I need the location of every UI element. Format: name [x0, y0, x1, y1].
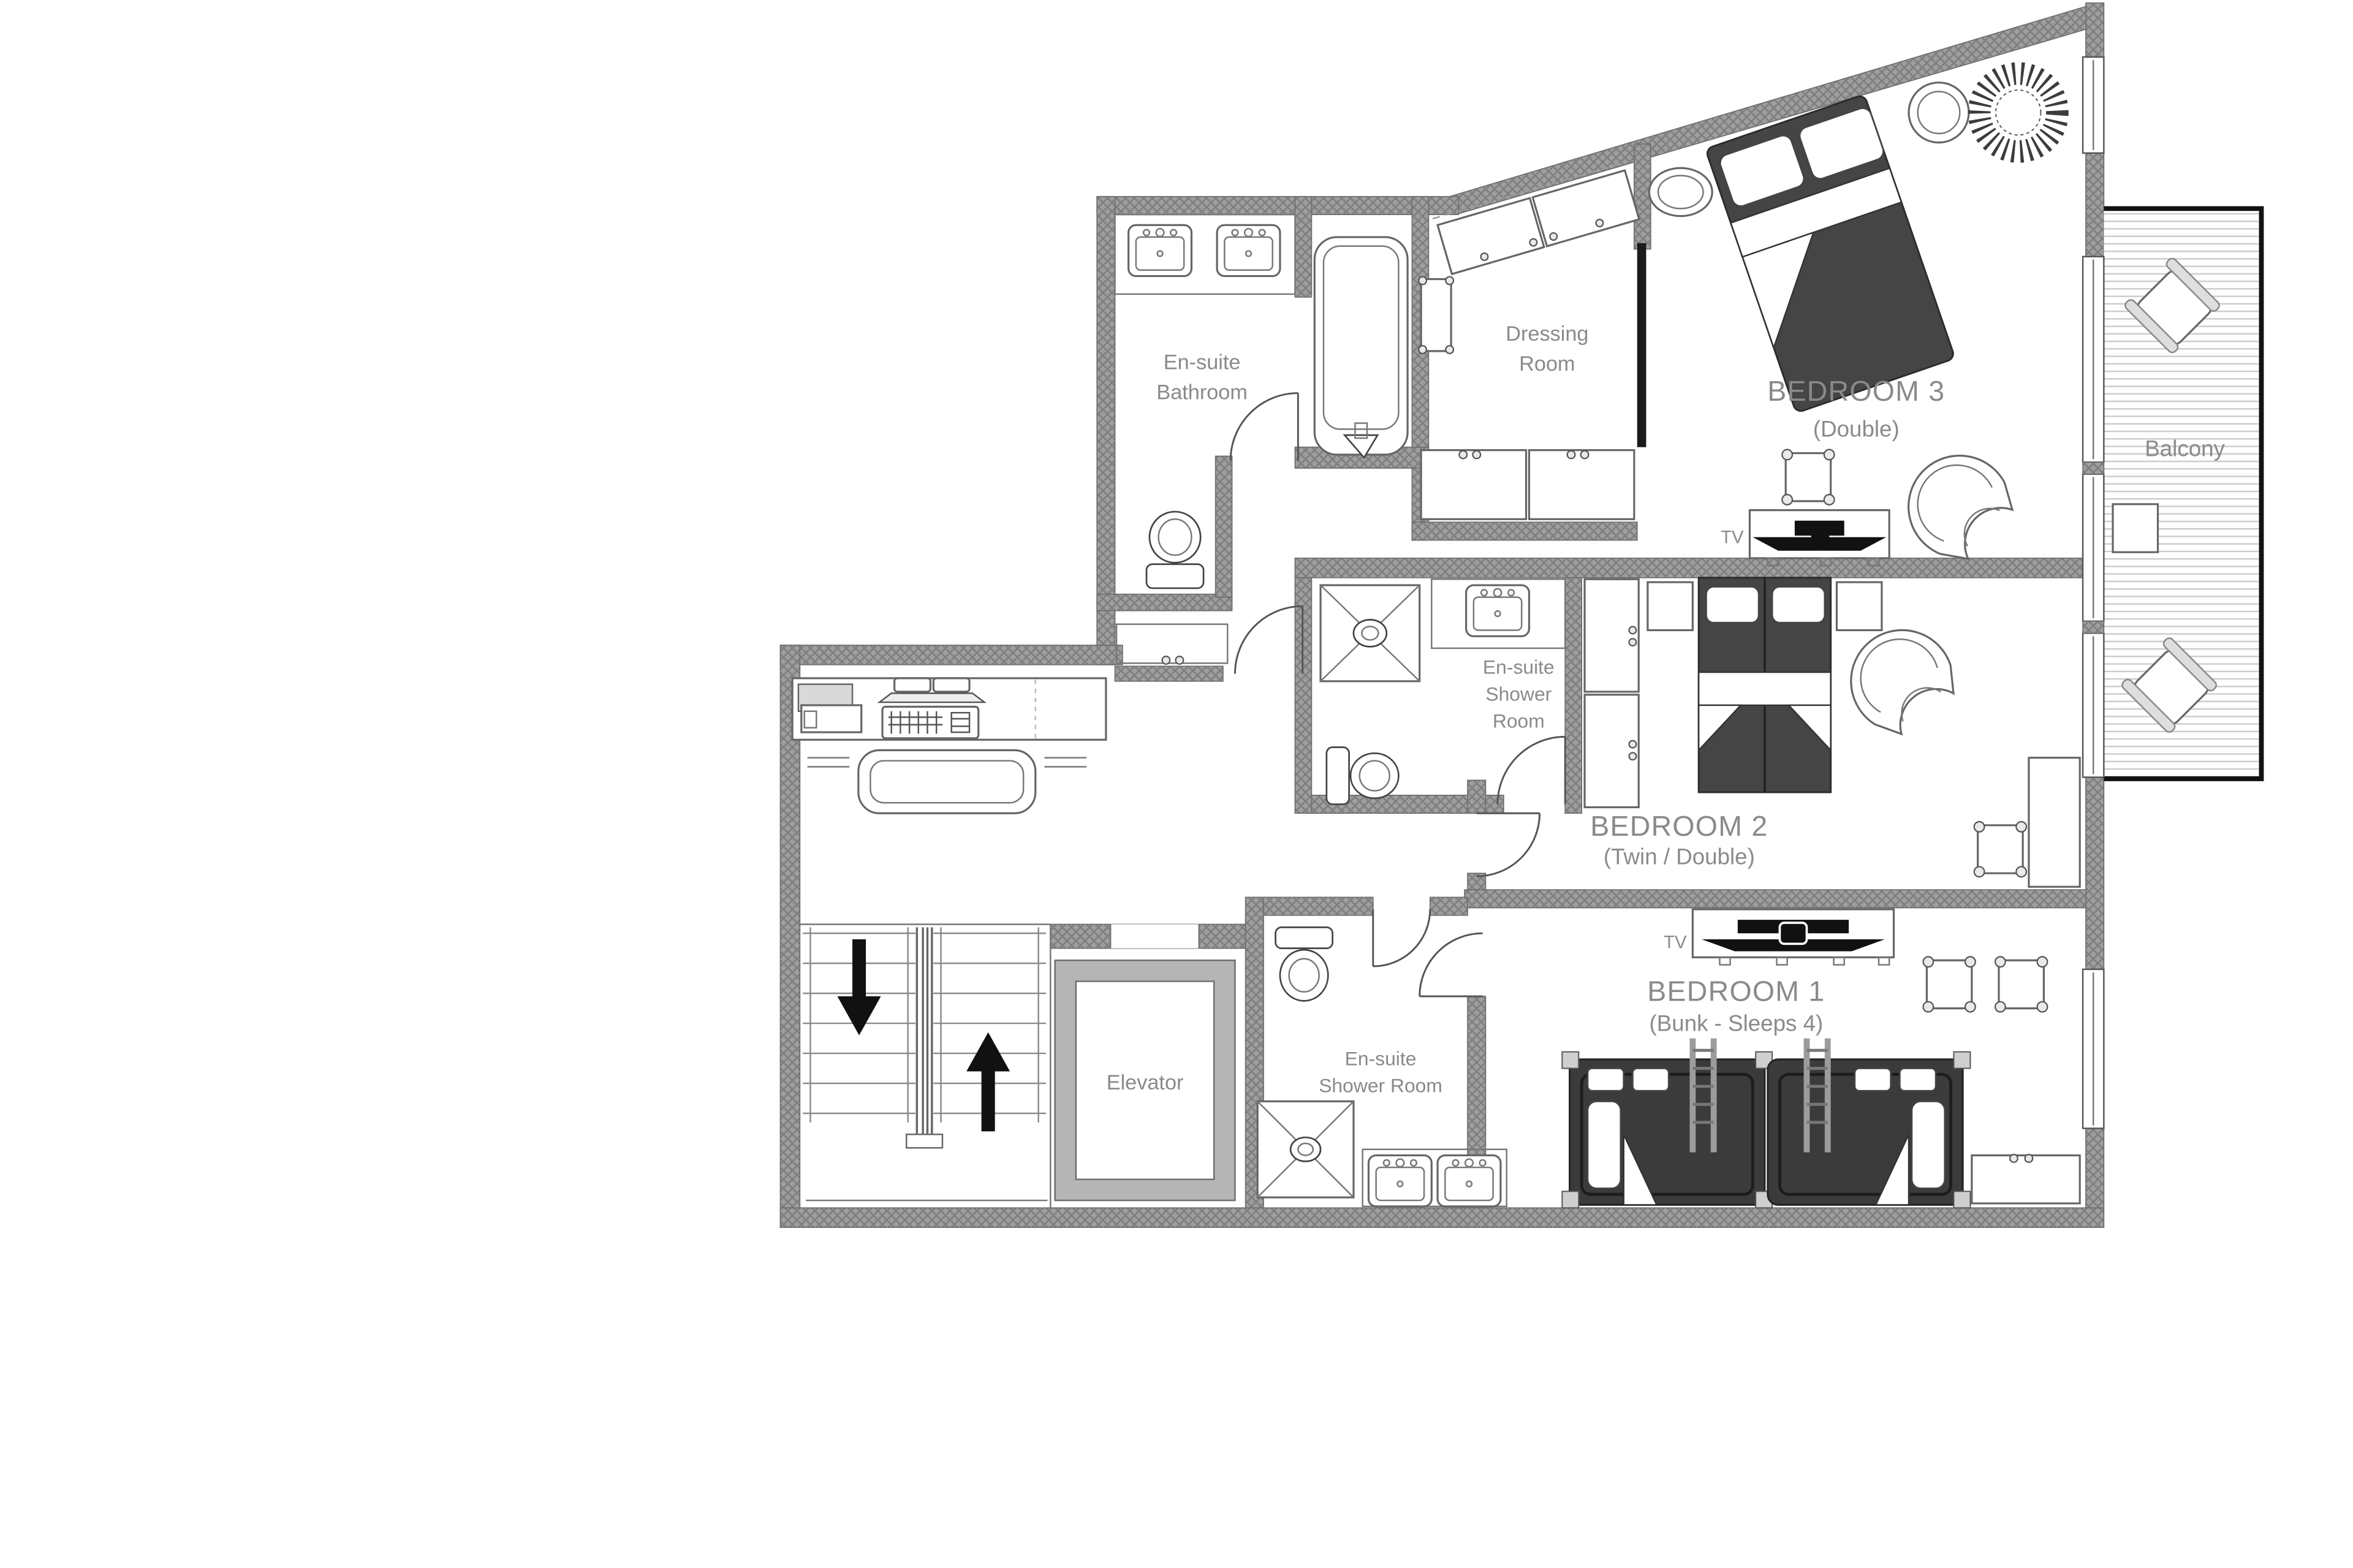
wall-bedroom3-bottom	[1295, 558, 2094, 578]
balcony: Balcony	[2104, 208, 2261, 779]
wall-ensuite1-top-stub	[1430, 897, 1468, 915]
floor-plan: Balcony En-s	[0, 0, 2353, 1568]
hall-cupboard	[1116, 624, 1227, 664]
side-table-icon	[2113, 504, 2158, 552]
bunk-bed-icon	[1768, 1039, 1971, 1208]
bedroom3-title: BEDROOM 3	[1767, 375, 1945, 407]
elevator: Elevator	[1055, 924, 1235, 1200]
ensuite-shower-bedroom2: En-suite Shower Room	[1320, 579, 1565, 804]
door-arc	[1235, 606, 1303, 673]
wall-hall-partition	[1115, 666, 1223, 681]
wall-bottom-outer	[781, 1208, 2104, 1227]
bedroom1-subtitle: (Bunk - Sleeps 4)	[1650, 1010, 1824, 1036]
wardrobe-icon	[1585, 579, 1639, 807]
up-arrow-icon	[966, 1032, 1010, 1132]
walls	[781, 3, 2104, 1227]
stairs-icon	[800, 924, 1050, 1208]
sink-icon	[1368, 1156, 1431, 1206]
tv-unit-bedroom1	[1692, 909, 1893, 965]
shower2-label-2: Shower	[1485, 683, 1552, 705]
printer-icon	[798, 684, 862, 732]
sofa-icon	[808, 750, 1086, 813]
double-bed-icon	[1705, 94, 1955, 413]
shower1-label-2: Shower Room	[1319, 1075, 1442, 1097]
tv-label-bedroom3: TV	[1721, 527, 1744, 547]
balcony-label: Balcony	[2145, 436, 2225, 461]
wall-dressing-right	[1634, 144, 1651, 249]
sunburst-rug-icon	[1979, 74, 2057, 151]
door-arc	[1477, 813, 1540, 876]
door-arc	[1373, 909, 1430, 966]
dressing-room-label-1: Dressing	[1506, 322, 1588, 346]
sink-icon	[1466, 585, 1529, 636]
shower2-label-3: Room	[1493, 710, 1545, 732]
bathtub-icon	[1314, 237, 1408, 458]
twin-bed-icon	[1699, 578, 1830, 792]
down-arrow-icon	[838, 939, 881, 1036]
wall-shower2-right	[1565, 578, 1582, 813]
wall-dressing-bottom	[1412, 522, 1637, 540]
bunk-bed-icon	[1562, 1039, 1772, 1208]
office-nook	[792, 678, 1106, 813]
sink-icon	[1129, 225, 1192, 276]
wall-ensuite1-top	[1254, 897, 1373, 915]
dressing-room-label-2: Room	[1519, 352, 1575, 376]
cupboard-icon	[1421, 450, 1634, 520]
keyboard-icon	[882, 706, 979, 738]
ensuite-bathroom-label-2: Bathroom	[1156, 381, 1248, 404]
sink-icon	[1438, 1156, 1501, 1206]
tv-label-bedroom1: TV	[1664, 933, 1687, 953]
sink-icon	[1217, 225, 1280, 276]
wall-sink-divider	[1295, 197, 1311, 297]
door-arc	[1498, 737, 1565, 804]
wall-stub	[2083, 462, 2104, 474]
bedroom3-subtitle: (Double)	[1813, 417, 1900, 442]
bedroom2-title: BEDROOM 2	[1590, 810, 1768, 842]
wall-wc-niche-right	[1216, 456, 1232, 597]
wall-wc-niche-bottom	[1097, 594, 1232, 611]
bedroom1: TV	[1562, 909, 2080, 1208]
ensuite-bathroom-label-1: En-suite	[1164, 350, 1241, 374]
tv-unit-bedroom3	[1749, 510, 1889, 566]
shower-tray-icon	[1257, 1101, 1354, 1197]
wall-bedroom2-bedroom1-divider	[1464, 890, 2094, 907]
elevator-label: Elevator	[1107, 1071, 1184, 1094]
elevator-door-gap	[1110, 924, 1199, 948]
desk-icon	[2029, 758, 2080, 887]
stool-icon	[1974, 822, 2026, 877]
stool-icon	[1923, 956, 1976, 1012]
shower1-label-1: En-suite	[1345, 1048, 1417, 1070]
bedside-table-icon	[1648, 582, 1692, 630]
armchair-icon	[1887, 434, 2024, 572]
stool-icon	[1995, 956, 2047, 1012]
cupboard-icon	[1972, 1154, 2080, 1203]
shower2-label-1: En-suite	[1483, 656, 1555, 678]
pocket-door-bar	[1637, 243, 1646, 447]
stool-icon	[1782, 450, 1834, 505]
wall-stub	[2083, 621, 2104, 634]
toilet-icon	[1146, 512, 1203, 588]
bedroom2-subtitle: (Twin / Double)	[1604, 844, 1755, 869]
stairs-center-rail	[906, 927, 942, 1148]
bedroom3: TV BEDROOM 3 (Double)	[1649, 74, 2057, 572]
wall-bathroom-top	[1097, 197, 1458, 214]
wall-leftwing-top	[781, 645, 1123, 665]
bedroom1-title: BEDROOM 1	[1647, 975, 1825, 1007]
dressing-room: Dressing Room	[1419, 162, 1642, 519]
bench-icon	[1419, 277, 1453, 354]
shower-tray-icon	[1320, 585, 1420, 681]
floor-plan-page: Balcony En-s	[0, 0, 2353, 1568]
wall-bedroom2-door-stub-top	[1468, 780, 1485, 813]
door-arc	[1420, 933, 1483, 996]
bedside-table-icon	[1836, 582, 1881, 630]
toilet-icon	[1276, 927, 1333, 1001]
